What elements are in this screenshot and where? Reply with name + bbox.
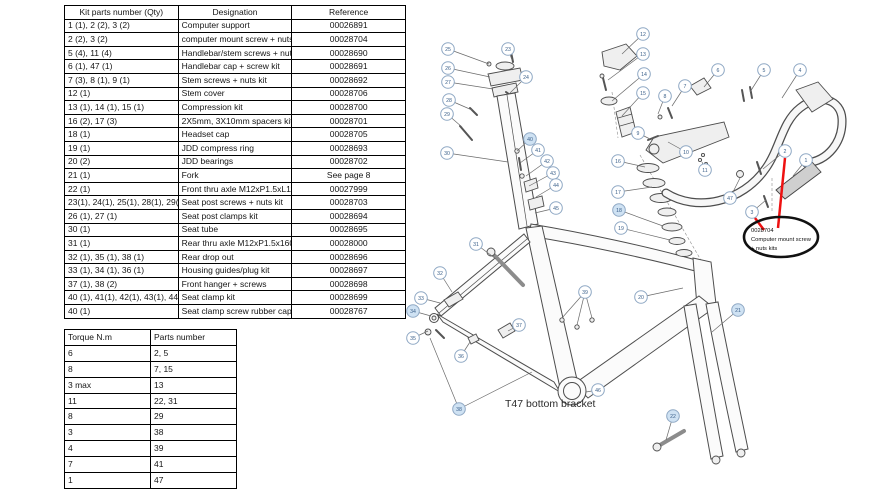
- callout-17: 17: [612, 186, 625, 199]
- callout-number: 12: [640, 32, 646, 38]
- callout-12: 12: [637, 28, 650, 41]
- callout-47: 47: [724, 192, 737, 205]
- callout-35: 35: [407, 332, 420, 345]
- callout-number: 40: [527, 137, 533, 143]
- callout-14: 14: [638, 68, 651, 81]
- callout-number: 3: [751, 210, 754, 216]
- callout-38: 38: [453, 403, 466, 416]
- frame-artwork: [425, 44, 842, 464]
- callout-number: 37: [516, 323, 522, 329]
- callout-number: 14: [641, 72, 647, 78]
- callout-18: 18: [613, 204, 626, 217]
- callout-33: 33: [415, 292, 428, 305]
- callout-number: 31: [473, 242, 479, 248]
- callout-3: 3: [746, 206, 759, 219]
- callout-number: 18: [616, 208, 622, 214]
- parts-manual-page: Kit parts number (Qty)DesignationReferen…: [0, 0, 870, 489]
- callout-leader-line: [447, 153, 508, 162]
- callout-number: 29: [444, 112, 450, 118]
- callout-number: 24: [523, 75, 529, 81]
- callout-number: 35: [410, 336, 416, 342]
- callout-number: 7: [684, 84, 687, 90]
- callout-number: 8: [664, 94, 667, 100]
- callout-number: 33: [418, 296, 424, 302]
- callout-11: 11: [699, 164, 712, 177]
- callout-32: 32: [434, 267, 447, 280]
- callout-number: 47: [727, 196, 733, 202]
- callout-1: 1: [800, 154, 813, 167]
- callout-number: 30: [444, 151, 450, 157]
- callout-21: 21: [732, 304, 745, 317]
- callout-15: 15: [637, 87, 650, 100]
- callout-40: 40: [524, 133, 537, 146]
- callout-9: 9: [632, 127, 645, 140]
- callout-number: 20: [638, 295, 644, 301]
- callout-19: 19: [615, 222, 628, 235]
- callout-number: 22: [670, 414, 676, 420]
- callout-leader-line: [621, 228, 670, 240]
- callout-number: 27: [445, 80, 451, 86]
- annotation-ref-code: 0028704: [751, 228, 774, 234]
- callout-42: 42: [541, 155, 554, 168]
- callout-number: 11: [702, 168, 707, 174]
- callout-number: 46: [595, 388, 601, 394]
- annotation-line2: + nuts kits: [751, 246, 777, 252]
- callout-number: 1: [805, 158, 808, 164]
- callout-number: 17: [615, 190, 621, 196]
- callout-2: 2: [779, 145, 792, 158]
- callout-39: 39: [579, 286, 592, 299]
- callout-number: 44: [553, 183, 559, 189]
- callout-13: 13: [637, 48, 650, 61]
- callout-44: 44: [550, 179, 563, 192]
- callout-number: 42: [544, 159, 550, 165]
- callout-leader-line: [430, 338, 459, 409]
- callout-number: 39: [582, 290, 588, 296]
- callout-36: 36: [455, 350, 468, 363]
- callout-25: 25: [442, 43, 455, 56]
- callout-6: 6: [712, 64, 725, 77]
- callout-leader-line: [448, 82, 493, 89]
- callout-number: 38: [456, 407, 462, 413]
- callout-number: 10: [683, 150, 689, 156]
- callout-number: 34: [410, 309, 416, 315]
- callout-20: 20: [635, 291, 648, 304]
- callout-41: 41: [532, 144, 545, 157]
- callout-23: 23: [502, 43, 515, 56]
- callout-number: 26: [445, 66, 451, 72]
- callout-number: 15: [640, 91, 646, 97]
- callout-22: 22: [667, 410, 680, 423]
- callout-26: 26: [442, 62, 455, 75]
- callout-10: 10: [680, 146, 693, 159]
- callout-27: 27: [442, 76, 455, 89]
- t47-bottom-bracket-label: T47 bottom bracket: [505, 398, 596, 410]
- callout-4: 4: [794, 64, 807, 77]
- callout-number: 41: [535, 148, 541, 154]
- callout-number: 45: [553, 206, 559, 212]
- callout-37: 37: [513, 319, 526, 332]
- exploded-bike-diagram: 0028704 Computer mount screw + nuts kits…: [0, 0, 870, 489]
- callout-number: 19: [618, 226, 624, 232]
- callout-34: 34: [407, 305, 420, 318]
- callout-7: 7: [679, 80, 692, 93]
- callout-number: 2: [784, 149, 787, 155]
- callout-24: 24: [520, 71, 533, 84]
- callout-number: 23: [505, 47, 511, 53]
- callout-number: 13: [640, 52, 646, 58]
- callout-31: 31: [470, 238, 483, 251]
- callout-number: 36: [458, 354, 464, 360]
- callout-number: 5: [763, 68, 766, 74]
- callout-number: 28: [446, 98, 452, 104]
- callout-29: 29: [441, 108, 454, 121]
- callout-number: 21: [735, 308, 741, 314]
- callout-number: 32: [437, 271, 443, 277]
- callout-16: 16: [612, 155, 625, 168]
- callout-number: 9: [637, 131, 640, 137]
- callout-number: 4: [799, 68, 802, 74]
- callout-number: 43: [550, 171, 556, 177]
- annotation-line1: Computer mount screw: [751, 237, 812, 243]
- callout-43: 43: [547, 167, 560, 180]
- callout-number: 6: [717, 68, 720, 74]
- callout-number: 16: [615, 159, 621, 165]
- callout-45: 45: [550, 202, 563, 215]
- callout-5: 5: [758, 64, 771, 77]
- callout-28: 28: [443, 94, 456, 107]
- callout-46: 46: [592, 384, 605, 397]
- callout-8: 8: [659, 90, 672, 103]
- callout-number: 25: [445, 47, 451, 53]
- callout-30: 30: [441, 147, 454, 160]
